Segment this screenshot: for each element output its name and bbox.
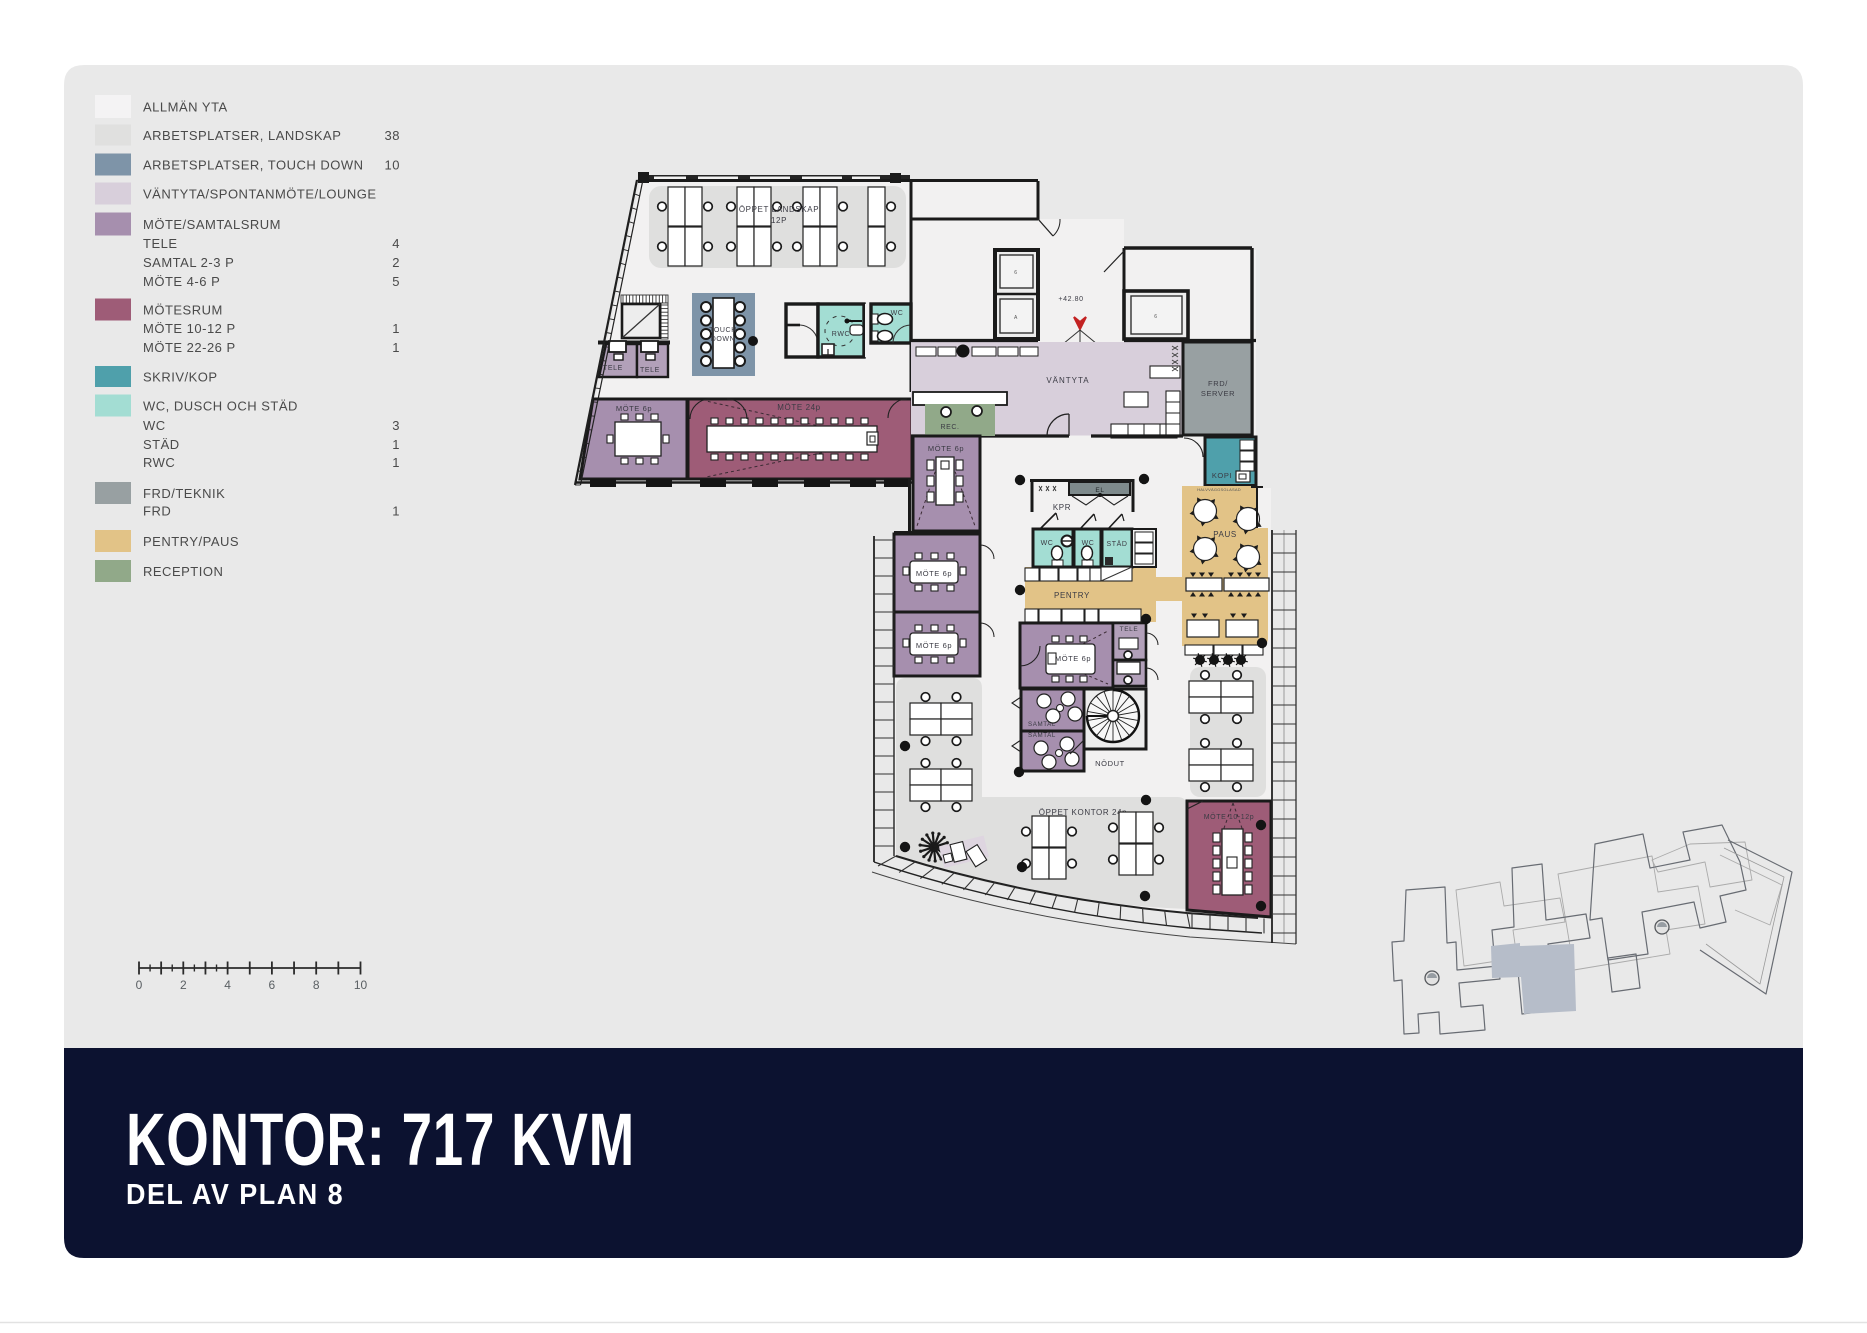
svg-text:DEL AV PLAN 8: DEL AV PLAN 8 bbox=[126, 1178, 344, 1210]
svg-text:4: 4 bbox=[392, 236, 400, 251]
svg-text:MÖTE 6p: MÖTE 6p bbox=[1055, 654, 1091, 663]
svg-text:MÖTE 10-12p: MÖTE 10-12p bbox=[1204, 813, 1255, 821]
svg-text:6: 6 bbox=[269, 978, 276, 992]
svg-text:2: 2 bbox=[180, 978, 187, 992]
svg-text:PAUS: PAUS bbox=[1213, 530, 1237, 539]
svg-text:STÄD: STÄD bbox=[1106, 540, 1127, 548]
svg-text:ALLMÄN YTA: ALLMÄN YTA bbox=[143, 100, 228, 115]
svg-text:6: 6 bbox=[1154, 314, 1157, 320]
svg-text:MÖTESRUM: MÖTESRUM bbox=[143, 303, 223, 318]
svg-text:2: 2 bbox=[392, 255, 400, 270]
svg-text:EL: EL bbox=[1095, 487, 1104, 494]
svg-text:TELE: TELE bbox=[1120, 626, 1139, 633]
svg-text:TOUCH: TOUCH bbox=[709, 327, 737, 334]
svg-text:SAMTAL 2-3 P: SAMTAL 2-3 P bbox=[143, 255, 234, 270]
svg-text:+42.80: +42.80 bbox=[1058, 296, 1083, 303]
svg-text:5: 5 bbox=[392, 274, 400, 289]
svg-text:KPR: KPR bbox=[1053, 503, 1071, 512]
svg-text:A: A bbox=[1014, 315, 1018, 321]
svg-text:VÄNTYTA: VÄNTYTA bbox=[1046, 376, 1089, 385]
svg-text:KONTOR: 717 KVM: KONTOR: 717 KVM bbox=[126, 1098, 635, 1181]
svg-text:SERVER: SERVER bbox=[1201, 389, 1235, 398]
svg-text:10: 10 bbox=[385, 158, 400, 173]
svg-text:MÖTE 24p: MÖTE 24p bbox=[777, 403, 820, 412]
svg-text:TELE: TELE bbox=[143, 236, 178, 251]
svg-text:WC: WC bbox=[143, 418, 166, 433]
svg-text:STÄD: STÄD bbox=[143, 437, 180, 452]
svg-text:TELE: TELE bbox=[640, 367, 660, 374]
svg-text:1: 1 bbox=[392, 321, 400, 336]
svg-text:FRD: FRD bbox=[143, 504, 171, 519]
svg-text:HALVVÄGGSGLASAD: HALVVÄGGSGLASAD bbox=[1197, 487, 1241, 492]
svg-text:ÖPPET LANDSKAP: ÖPPET LANDSKAP bbox=[739, 205, 819, 214]
svg-text:KOPI: KOPI bbox=[1212, 471, 1232, 480]
svg-text:REC.: REC. bbox=[940, 424, 959, 431]
svg-text:WC: WC bbox=[1041, 540, 1054, 547]
svg-text:WC, DUSCH OCH STÄD: WC, DUSCH OCH STÄD bbox=[143, 399, 298, 414]
svg-text:MÖTE 10-12 P: MÖTE 10-12 P bbox=[143, 321, 236, 336]
svg-text:10: 10 bbox=[354, 978, 368, 992]
svg-text:RWC: RWC bbox=[832, 331, 850, 338]
svg-text:FRD/TEKNIK: FRD/TEKNIK bbox=[143, 486, 225, 501]
svg-text:PENTRY: PENTRY bbox=[1054, 591, 1090, 600]
svg-text:1: 1 bbox=[392, 340, 400, 355]
svg-text:TELE: TELE bbox=[603, 365, 623, 372]
svg-text:DOWN: DOWN bbox=[711, 336, 736, 343]
svg-text:MÖTE 6p: MÖTE 6p bbox=[928, 444, 964, 453]
svg-text:MÖTE 22-26 P: MÖTE 22-26 P bbox=[143, 340, 236, 355]
svg-text:4: 4 bbox=[224, 978, 231, 992]
svg-text:3: 3 bbox=[392, 418, 400, 433]
svg-text:12P: 12P bbox=[771, 216, 787, 225]
svg-text:1: 1 bbox=[392, 455, 400, 470]
svg-text:SAMTAL: SAMTAL bbox=[1028, 732, 1056, 739]
svg-text:FRD/: FRD/ bbox=[1208, 379, 1228, 388]
svg-text:ARBETSPLATSER, LANDSKAP: ARBETSPLATSER, LANDSKAP bbox=[143, 128, 341, 143]
svg-text:38: 38 bbox=[385, 128, 400, 143]
svg-text:MÖTE 6p: MÖTE 6p bbox=[616, 404, 652, 413]
svg-text:RWC: RWC bbox=[143, 455, 175, 470]
svg-text:ARBETSPLATSER, TOUCH DOWN: ARBETSPLATSER, TOUCH DOWN bbox=[143, 158, 364, 173]
svg-text:1: 1 bbox=[392, 504, 400, 519]
svg-text:MÖTE 6p: MÖTE 6p bbox=[916, 569, 952, 578]
svg-text:RECEPTION: RECEPTION bbox=[143, 564, 223, 579]
svg-text:VÄNTYTA/SPONTANMÖTE/LOUNGE: VÄNTYTA/SPONTANMÖTE/LOUNGE bbox=[143, 187, 377, 202]
svg-text:SKRIV/KOP: SKRIV/KOP bbox=[143, 370, 218, 385]
svg-text:NÖDUT: NÖDUT bbox=[1095, 759, 1125, 768]
svg-text:MÖTE/SAMTALSRUM: MÖTE/SAMTALSRUM bbox=[143, 217, 281, 232]
svg-text:0: 0 bbox=[136, 978, 143, 992]
svg-text:8: 8 bbox=[313, 978, 320, 992]
svg-text:1: 1 bbox=[392, 437, 400, 452]
svg-text:MÖTE 4-6 P: MÖTE 4-6 P bbox=[143, 274, 220, 289]
svg-text:6: 6 bbox=[1014, 270, 1017, 276]
svg-text:WC: WC bbox=[891, 310, 904, 317]
svg-text:PENTRY/PAUS: PENTRY/PAUS bbox=[143, 534, 239, 549]
svg-text:MÖTE 6p: MÖTE 6p bbox=[916, 641, 952, 650]
